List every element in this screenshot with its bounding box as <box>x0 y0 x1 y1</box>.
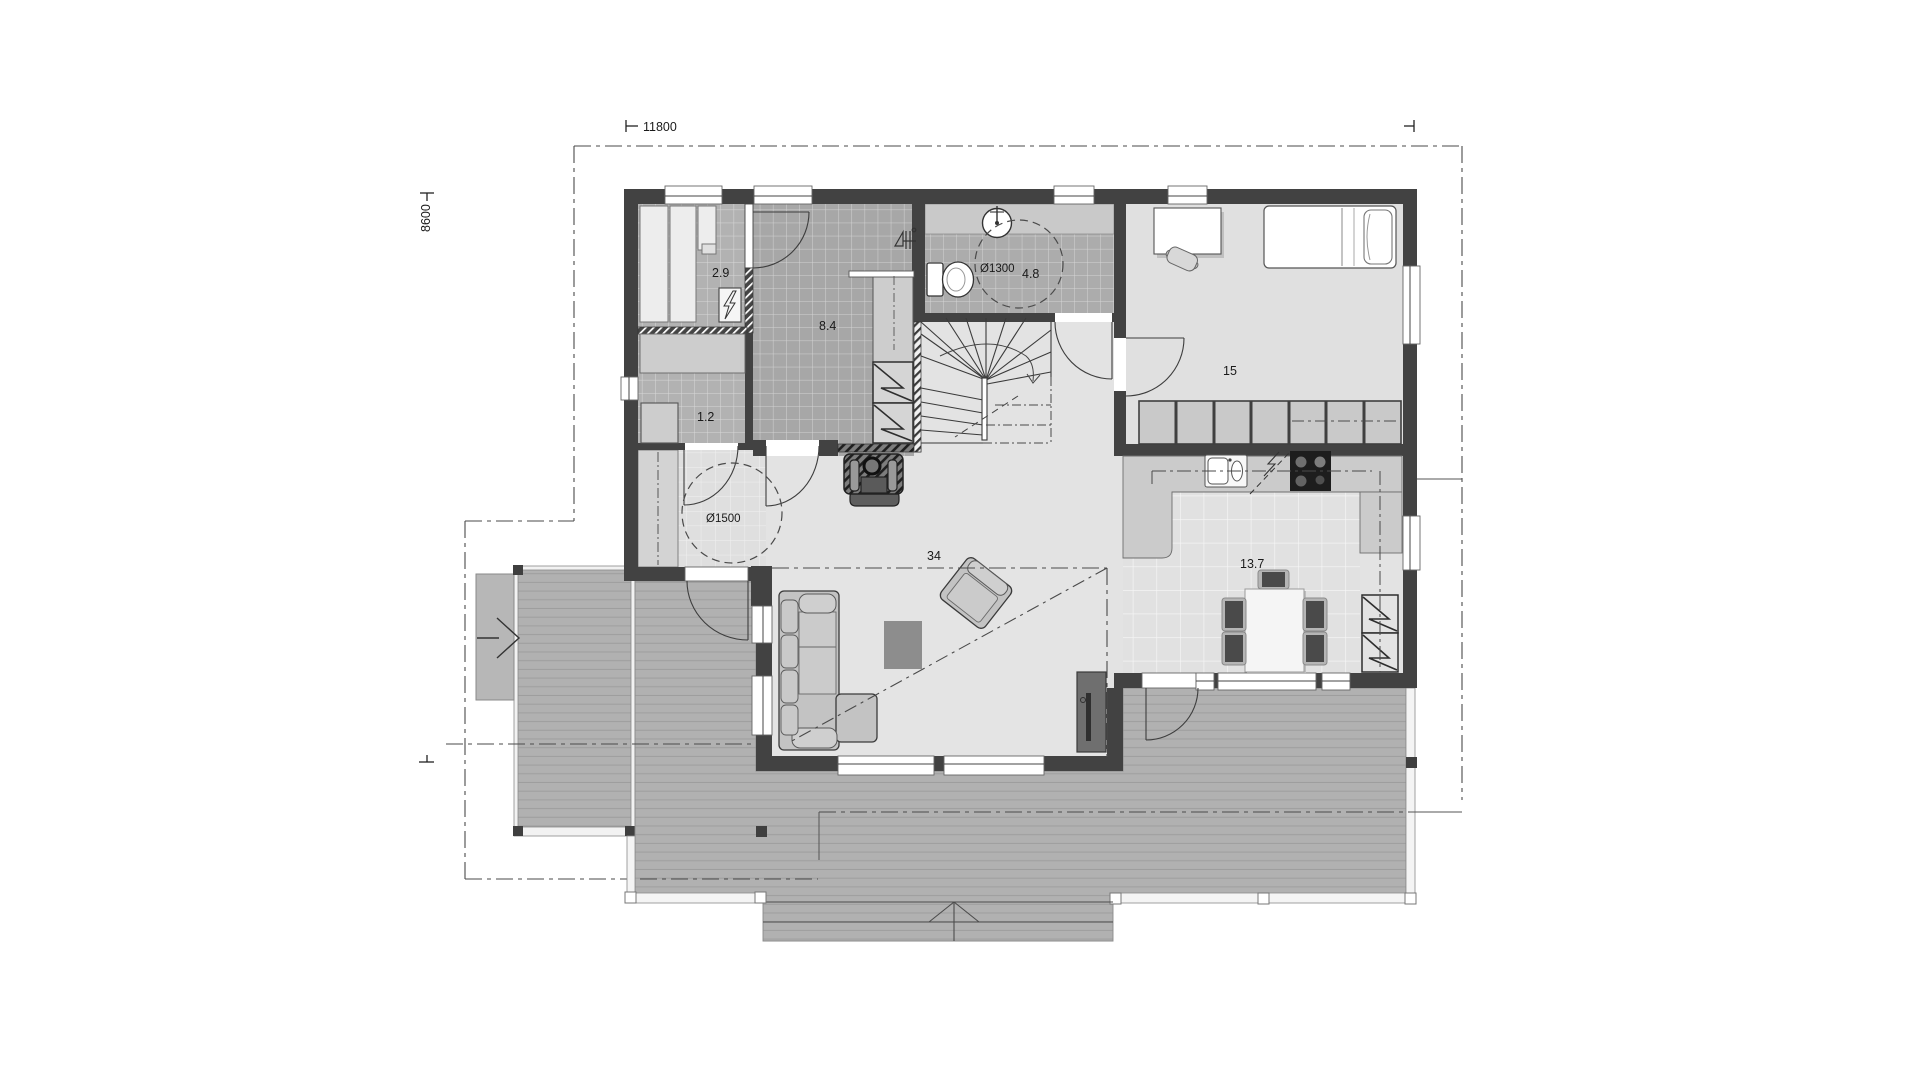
svg-text:2.9: 2.9 <box>712 266 729 280</box>
svg-text:15: 15 <box>1223 364 1237 378</box>
svg-text:4.8: 4.8 <box>1022 267 1039 281</box>
svg-text:Ø1300: Ø1300 <box>980 263 1015 275</box>
svg-text:8600: 8600 <box>419 204 433 232</box>
svg-text:13.7: 13.7 <box>1240 557 1264 571</box>
svg-text:1.2: 1.2 <box>697 410 714 424</box>
svg-text:Ø1500: Ø1500 <box>706 513 741 525</box>
svg-text:34: 34 <box>927 549 941 563</box>
svg-text:8.4: 8.4 <box>819 319 836 333</box>
svg-text:11800: 11800 <box>643 120 677 134</box>
